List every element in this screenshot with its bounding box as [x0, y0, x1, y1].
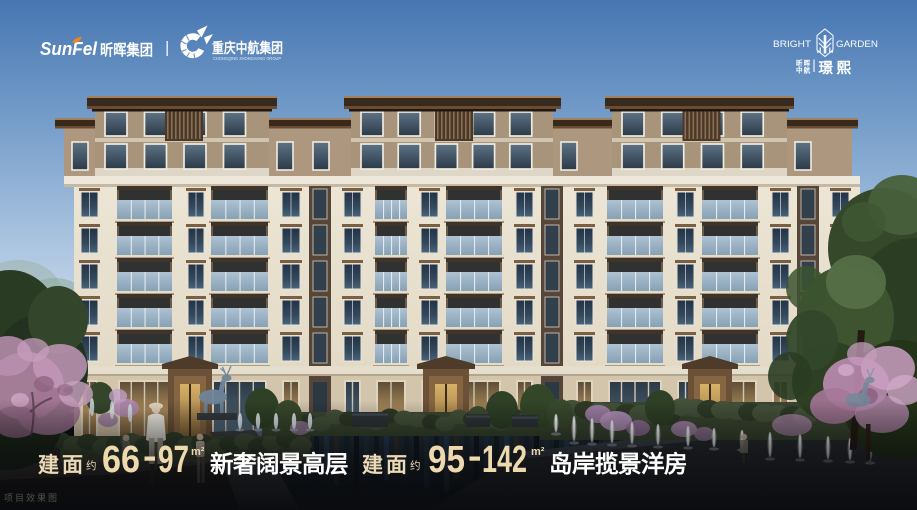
svg-text:m²: m² — [191, 446, 205, 458]
svg-text:建面: 建面 — [362, 453, 410, 477]
svg-text:昕晖: 昕晖 — [796, 59, 811, 68]
svg-text:新奢阔景高层: 新奢阔景高层 — [210, 450, 348, 477]
svg-text:中航: 中航 — [796, 66, 811, 75]
svg-text:璟熙: 璟熙 — [819, 60, 855, 77]
svg-text:95: 95 — [428, 439, 465, 481]
svg-text:66: 66 — [102, 439, 140, 481]
svg-text:岛岸揽景洋房: 岛岸揽景洋房 — [549, 450, 687, 477]
svg-text:约: 约 — [86, 459, 97, 472]
svg-text:GARDEN: GARDEN — [836, 39, 878, 49]
svg-text:约: 约 — [410, 459, 421, 472]
svg-text:m²: m² — [531, 446, 545, 458]
svg-text:昕晖集团: 昕晖集团 — [100, 41, 153, 59]
svg-text:SunFel: SunFel — [40, 39, 98, 59]
svg-text:CHONGQING ZHONGHANG GROUP: CHONGQING ZHONGHANG GROUP — [213, 56, 281, 61]
svg-text:重庆中航集团: 重庆中航集团 — [212, 40, 283, 56]
svg-text:项目效果图: 项目效果图 — [4, 492, 59, 503]
svg-text:97: 97 — [158, 439, 189, 481]
svg-text:建面: 建面 — [38, 453, 86, 477]
svg-text:142: 142 — [482, 439, 527, 481]
svg-text:BRIGHT: BRIGHT — [773, 39, 812, 49]
